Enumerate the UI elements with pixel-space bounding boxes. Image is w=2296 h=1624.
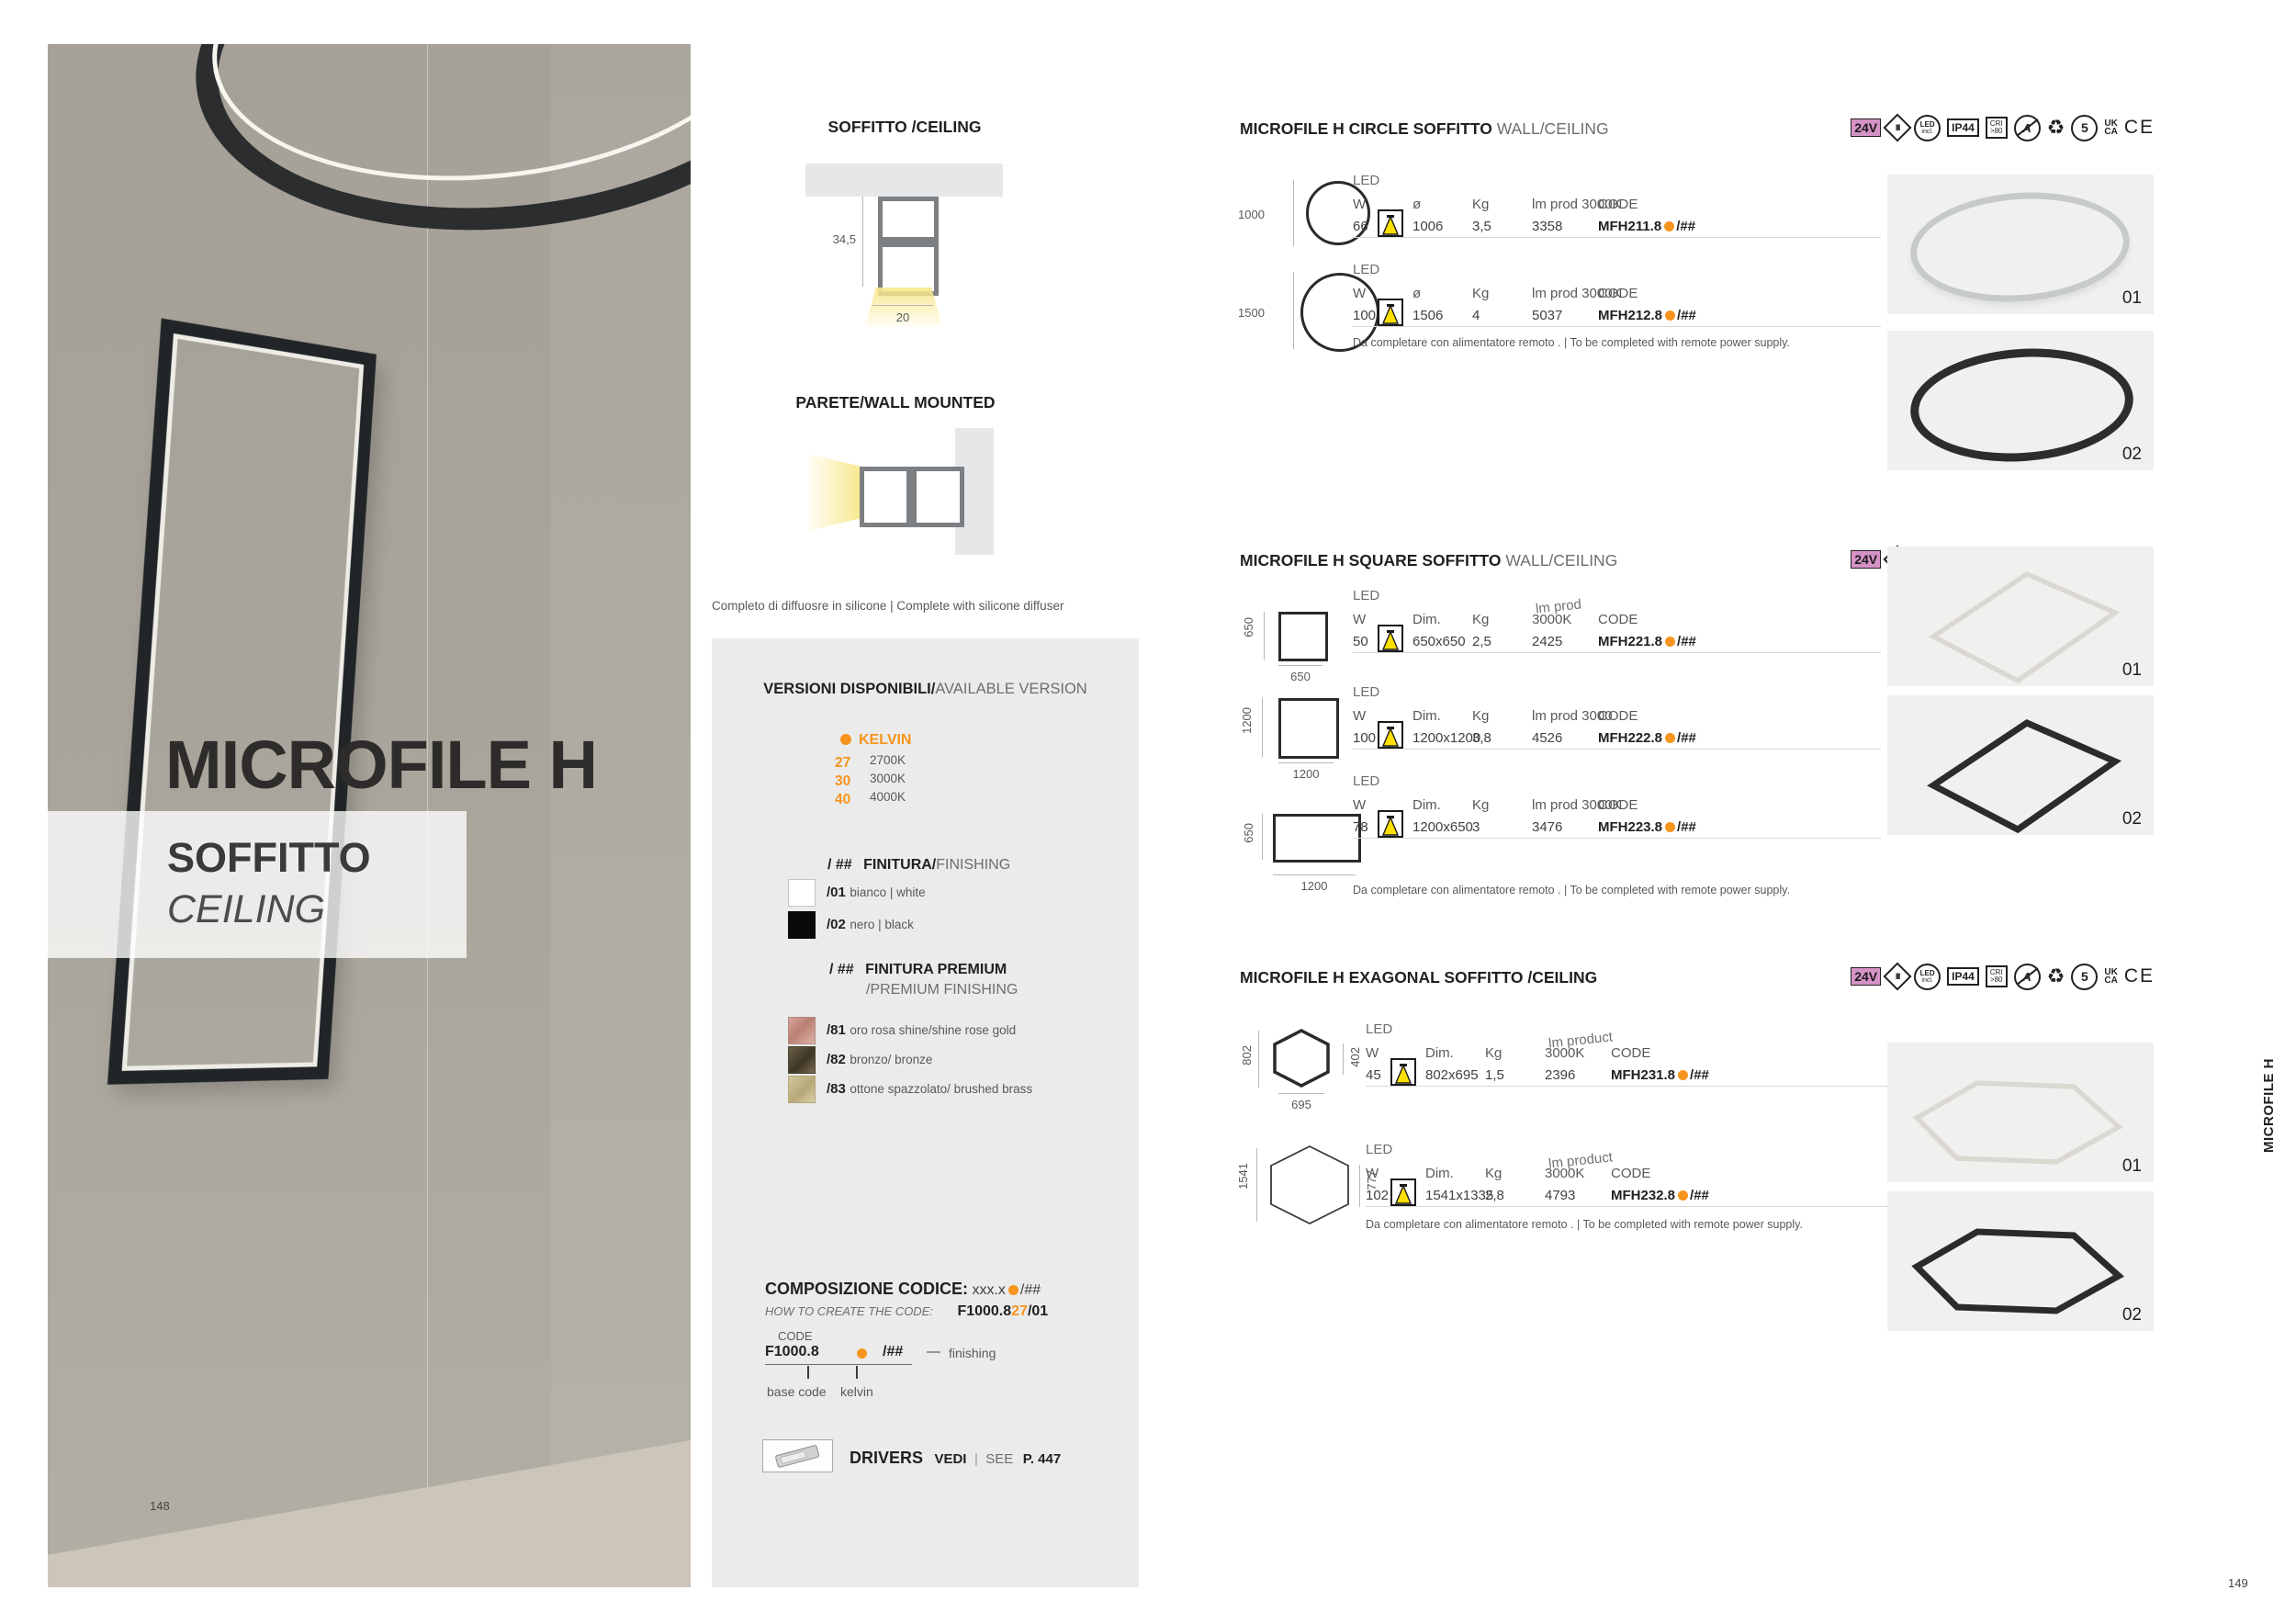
drivers-label: DRIVERS: [850, 1449, 923, 1467]
badge-ce-icon: CE: [2124, 117, 2155, 139]
dim-line: [1343, 1043, 1344, 1075]
code-value: MFH221.8: [1598, 634, 1662, 649]
swatch-bronze: [788, 1046, 816, 1074]
col-header-dim: Dim.: [1412, 612, 1441, 627]
light-beam-icon: [1378, 625, 1403, 652]
kelvin-dot-icon: [857, 1348, 867, 1359]
code-composition-title: COMPOSIZIONE CODICE: xxx.x/##: [765, 1280, 1041, 1299]
power-supply-note: Da completare con alimentatore remoto . …: [1366, 1218, 1803, 1231]
circle-diameter-label: 1000: [1238, 208, 1265, 221]
kelvin-dot-icon: [1008, 1285, 1019, 1295]
hex-bottom-label: 695: [1278, 1098, 1324, 1111]
kelvin-dot-icon: [1678, 1070, 1688, 1080]
recycle-icon: ♻: [2047, 966, 2065, 987]
spec-row: LED W Dim. Kg lm prod 3000K CODE 50 650x…: [1353, 588, 1881, 653]
badge-24v-icon: 24V: [1851, 967, 1881, 986]
col-header-lm: 3000K: [1532, 612, 1571, 627]
spec-row: LED W Dim. Kg lm prod 3000K CODE 78 1200…: [1353, 773, 1881, 839]
value-dim: 1200x1200: [1412, 730, 1480, 746]
variant-label: 01: [2122, 660, 2142, 681]
light-beam-icon: [1378, 721, 1403, 749]
dim-line: [1264, 612, 1265, 660]
white-ring-product: [1907, 186, 2133, 309]
wall-diagram-title: PARETE/WALL MOUNTED: [781, 393, 1010, 412]
sample-kelvin: 27: [1011, 1303, 1028, 1319]
side-tab-label: MICROFILE H: [2261, 1058, 2277, 1153]
rect-drawing: [1273, 814, 1361, 863]
light-beam-icon: [1378, 299, 1403, 326]
badge-cri-icon: CRI>80: [1986, 965, 2008, 987]
square-bottom-label: 1200: [1278, 767, 1334, 781]
code-formula: F1000.8 /##: [765, 1344, 912, 1365]
value-lm: 3476: [1532, 819, 1562, 835]
value-lm: 2396: [1545, 1067, 1575, 1083]
code-value: MFH223.8: [1598, 819, 1662, 835]
col-header-dim: ø: [1412, 286, 1421, 301]
swatch-brushed-brass: [788, 1076, 816, 1103]
kelvin-dot-icon: [1678, 1190, 1688, 1201]
code-value: MFH231.8: [1611, 1067, 1675, 1083]
kelvin-title: KELVIN: [859, 732, 911, 749]
col-header-dim: ø: [1412, 197, 1421, 212]
finishing-suffix: /##: [883, 1344, 903, 1360]
badge-class3-icon: III: [1884, 962, 1912, 990]
value-lm: 4793: [1545, 1188, 1575, 1203]
dim-line: [862, 197, 863, 287]
code-value: MFH232.8: [1611, 1188, 1675, 1203]
badge-class3-label: III: [1896, 972, 1900, 981]
code-suffix: /##: [1677, 819, 1696, 835]
driver-illustration: [763, 1440, 832, 1472]
badge-ukca-icon: UKCA: [2104, 968, 2117, 985]
finish-row-bronze: /82 bronzo/ bronze: [827, 1052, 932, 1068]
code-comp-bold: COMPOSIZIONE CODICE:: [765, 1280, 968, 1298]
profile-section-drawing-wall: [860, 467, 964, 527]
value-kg: 2,8: [1485, 1188, 1504, 1203]
square-side-label: 1200: [1240, 707, 1254, 734]
dim-line: [1293, 180, 1294, 246]
square-drawing: [1278, 612, 1328, 661]
badge-ip44-icon: IP44: [1947, 118, 1979, 137]
variant-label: 01: [2122, 288, 2142, 309]
ceiling-diagram-title: SOFFITTO /CEILING: [790, 118, 1019, 137]
finish-code: /83: [827, 1081, 846, 1097]
dim-line: [1359, 1165, 1360, 1207]
col-header-code: CODE: [1598, 286, 1638, 301]
badge-5year-icon: 5: [2071, 964, 2098, 990]
col-header-code: CODE: [1611, 1045, 1650, 1061]
badge-ukca-icon: UKCA: [2104, 119, 2117, 136]
col-header-lm: 3000K: [1545, 1045, 1584, 1061]
page-number-right: 149: [2228, 1576, 2248, 1590]
spec-row: LED W ø Kg lm prod 3000K CODE 100 1506 4…: [1353, 262, 1881, 327]
product-code: MFH231.8/##: [1611, 1067, 1709, 1083]
kelvin-dot-icon: [1665, 733, 1675, 743]
profile-section-drawing: [878, 197, 939, 296]
dim-line: [1262, 698, 1263, 757]
badge-cri-icon: CRI>80: [1986, 117, 2008, 139]
rect-side-label: 650: [1242, 823, 1255, 843]
section-title-square: MICROFILE H SQUARE SOFFITTO WALL/CEILING: [1240, 551, 1617, 570]
black-hexagon-product: [1887, 1191, 2154, 1331]
value-w: 100: [1353, 730, 1376, 746]
badge-cri-value: >80: [1990, 128, 2003, 135]
swatch-white: [788, 879, 816, 907]
variant-label: 01: [2122, 1156, 2142, 1177]
code-suffix: /##: [1677, 308, 1696, 323]
finish-code: /02: [827, 917, 846, 932]
dash: —: [927, 1344, 940, 1359]
col-header-code: CODE: [1598, 797, 1638, 813]
hex-left-label: 1541: [1236, 1163, 1250, 1190]
frame-light-photo: [107, 318, 377, 1084]
col-header-dim: Dim.: [1412, 797, 1441, 813]
col-header-w: W: [1353, 197, 1366, 212]
code-comp-suffix: /##: [1020, 1282, 1041, 1298]
code-suffix: /##: [1677, 634, 1696, 649]
col-header-kg: Kg: [1472, 612, 1489, 627]
col-header-kg: Kg: [1472, 708, 1489, 724]
col-header-w: W: [1353, 286, 1366, 301]
badge-ip44-label: IP44: [1952, 122, 1975, 133]
spec-row: LED W Dim. Kg lm prod 3000 CODE 100 1200…: [1353, 684, 1881, 750]
light-beam-icon: [1378, 810, 1403, 838]
recycle-icon: ♻: [2047, 118, 2065, 138]
finishing-prefix: / ##: [827, 857, 852, 873]
finishing-bold: FINITURA/: [863, 857, 936, 873]
finish-code: /82: [827, 1052, 846, 1067]
black-ring-product: [1907, 342, 2137, 469]
kelvin-dot-icon: [1664, 221, 1674, 231]
sample-pre: F1000.8: [957, 1303, 1011, 1319]
col-header-w: W: [1366, 1045, 1379, 1061]
value-kg: 4: [1472, 308, 1480, 323]
col-header-dim: Dim.: [1425, 1045, 1454, 1061]
page-title: MICROFILE H: [165, 726, 597, 804]
badge-5year-icon: 5: [2071, 115, 2098, 141]
subtitle-english: CEILING: [167, 887, 325, 932]
circle-diameter-label: 1500: [1238, 306, 1265, 320]
rect-bottom-label: 1200: [1273, 879, 1356, 893]
product-code: MFH212.8/##: [1598, 308, 1696, 323]
spec-row: LED W ø Kg lm prod 3000K CODE 66 1006 3,…: [1353, 173, 1881, 238]
black-square-product: [1887, 695, 2154, 835]
col-header-code: CODE: [1598, 612, 1638, 627]
code-label: CODE: [778, 1329, 813, 1343]
product-image-hexagon-white: 01: [1887, 1043, 2154, 1182]
product-code: MFH232.8/##: [1611, 1188, 1709, 1203]
code-comp-example: xxx.x: [972, 1282, 1005, 1298]
finishing-rest: FINISHING: [936, 857, 1010, 873]
badge-24v-icon: 24V: [1851, 118, 1881, 137]
value-w: 102: [1366, 1188, 1389, 1203]
code-value: MFH222.8: [1598, 730, 1662, 746]
col-header-kg: Kg: [1472, 197, 1489, 212]
hero-photo: MICROFILE H SOFFITTO CEILING 148: [48, 44, 691, 1587]
catalog-page: MICROFILE H SOFFITTO CEILING 148 SOFFITT…: [0, 0, 2296, 1624]
badge-ca-label: CA: [2104, 128, 2117, 136]
drivers-page-ref: P. 447: [1023, 1451, 1061, 1467]
value-dim: 802x695: [1425, 1067, 1479, 1083]
value-dim: 650x650: [1412, 634, 1466, 649]
light-beam-left: [808, 454, 860, 531]
kelvin-dot-icon: [1665, 310, 1675, 321]
badge-led-label: LED: [1920, 970, 1935, 977]
light-beam-icon: [1390, 1179, 1416, 1206]
col-header-code: CODE: [1598, 708, 1638, 724]
ceiling-slab: [805, 164, 1003, 197]
kelvin-value: 2700K: [870, 753, 906, 767]
kelvin-value: 4000K: [870, 790, 906, 804]
section-title-bold: MICROFILE H SQUARE SOFFITTO: [1240, 551, 1502, 570]
badge-ce-icon: CE: [2124, 965, 2155, 987]
premium-header-line2: /PREMIUM FINISHING: [866, 982, 1018, 998]
sample-fin: /01: [1028, 1303, 1048, 1319]
swatch-black: [788, 911, 816, 939]
value-kg: 3: [1472, 819, 1480, 835]
value-dim: 1506: [1412, 308, 1443, 323]
value-kg: 1,5: [1485, 1067, 1504, 1083]
premium-header: / ## FINITURA PREMIUM: [829, 962, 1007, 978]
white-hexagon-product: [1887, 1043, 2154, 1182]
hexagon-drawing: [1271, 1029, 1332, 1088]
col-header-w: W: [1353, 708, 1366, 724]
section-title-sub: WALL/CEILING: [1497, 119, 1609, 138]
finish-code: /01: [827, 885, 846, 900]
page-number-left: 148: [150, 1499, 170, 1513]
badge-class3-icon: III: [1884, 113, 1912, 141]
finishing-word: finishing: [949, 1346, 996, 1360]
col-header-dim: Dim.: [1425, 1166, 1454, 1181]
hex-right-label: 402: [1348, 1047, 1362, 1067]
drivers-row: DRIVERS VEDI | SEE P. 447: [850, 1449, 1061, 1468]
product-image-circle-white: 01: [1887, 175, 2154, 314]
kelvin-dot-icon: [1665, 822, 1675, 832]
badge-cri-value: >80: [1990, 976, 2003, 984]
product-code: MFH221.8/##: [1598, 634, 1696, 649]
col-header-code: CODE: [1598, 197, 1638, 212]
value-kg: 3,8: [1472, 730, 1491, 746]
finish-label: ottone spazzolato/ brushed brass: [850, 1082, 1032, 1096]
col-header-dim: Dim.: [1412, 708, 1441, 724]
finish-label: nero | black: [850, 918, 914, 931]
code-value: MFH211.8: [1598, 219, 1661, 234]
led-label: LED: [1353, 262, 1379, 277]
dim-line: [1278, 762, 1334, 763]
col-header-w: W: [1353, 612, 1366, 627]
dim-20: 20: [872, 310, 933, 324]
badge-led-included-icon: LEDincl.: [1914, 964, 1941, 990]
code-suffix: /##: [1690, 1067, 1709, 1083]
hex-left-label: 802: [1240, 1045, 1254, 1066]
product-image-circle-black: 02: [1887, 331, 2154, 470]
subtitle-italian: SOFFITTO: [167, 834, 371, 882]
premium-bold: FINITURA PREMIUM: [865, 962, 1007, 977]
how-to-label: HOW TO CREATE THE CODE:: [765, 1304, 933, 1318]
base-code-value: F1000.8: [765, 1344, 819, 1360]
value-lm: 3358: [1532, 219, 1562, 234]
square-drawing: [1278, 698, 1339, 759]
power-supply-note: Da completare con alimentatore remoto . …: [1353, 336, 1790, 349]
pointer-bar: [807, 1366, 809, 1379]
value-w: 100: [1353, 308, 1376, 323]
code-value: MFH212.8: [1598, 308, 1662, 323]
led-label: LED: [1366, 1021, 1392, 1037]
how-to-row: HOW TO CREATE THE CODE: F1000.827/01: [765, 1303, 1048, 1320]
finish-label: oro rosa shine/shine rose gold: [850, 1023, 1016, 1037]
square-bottom-label: 650: [1278, 670, 1322, 683]
versions-title-bold: VERSIONI DISPONIBILI/: [763, 681, 935, 697]
wall-panel: [551, 44, 691, 1587]
badge-led-label: LED: [1920, 121, 1935, 129]
finish-code: /81: [827, 1022, 846, 1038]
badge-24v-icon: 24V: [1851, 550, 1881, 569]
premium-prefix: / ##: [829, 962, 854, 977]
pointer-bar: [856, 1366, 858, 1379]
col-header-kg: Kg: [1485, 1166, 1502, 1181]
variant-label: 02: [2122, 445, 2142, 465]
col-header-w: W: [1366, 1166, 1379, 1181]
product-code: MFH223.8/##: [1598, 819, 1696, 835]
variant-label: 02: [2122, 809, 2142, 829]
dim-line: [1258, 1031, 1259, 1088]
dim-line: [1278, 665, 1322, 666]
finish-row-white: /01 bianco | white: [827, 885, 926, 901]
value-lm: 2425: [1532, 634, 1562, 649]
certification-badges: 24V III LEDincl. IP44 CRI>80 A ♻ 5 UKCA …: [1837, 112, 2155, 143]
value-w: 66: [1353, 219, 1368, 234]
product-code: MFH222.8/##: [1598, 730, 1696, 746]
kelvin-dot-icon: [1665, 637, 1675, 647]
product-image-hexagon-black: 02: [1887, 1191, 2154, 1331]
badge-ip44-label: IP44: [1952, 971, 1975, 982]
badge-a-label: A: [2022, 970, 2031, 984]
finish-label: bronzo/ bronze: [850, 1053, 932, 1066]
badge-no-lamp-icon: A: [2014, 115, 2041, 141]
sample-code: F1000.827/01: [957, 1303, 1048, 1319]
value-w: 45: [1366, 1067, 1381, 1083]
code-suffix: /##: [1690, 1188, 1709, 1203]
value-dim: 1200x650: [1412, 819, 1473, 835]
spec-row: LED W Dim. Kg lm product 3000K CODE 45 8…: [1366, 1021, 1894, 1087]
value-kg: 3,5: [1472, 219, 1491, 234]
title-band: [48, 811, 467, 958]
driver-icon: [762, 1439, 833, 1472]
kelvin-code: 30: [835, 773, 850, 790]
versions-title: VERSIONI DISPONIBILI/AVAILABLE VERSION: [712, 681, 1139, 698]
led-label: LED: [1353, 588, 1379, 603]
value-dim: 1006: [1412, 219, 1443, 234]
swatch-rose-gold: [788, 1017, 816, 1044]
section-title-sub: WALL/CEILING: [1505, 551, 1617, 570]
value-lm: 5037: [1532, 308, 1562, 323]
value-kg: 2,5: [1472, 634, 1491, 649]
led-label: LED: [1353, 684, 1379, 700]
hexagon-drawing: [1267, 1145, 1352, 1225]
led-label: LED: [1366, 1142, 1392, 1157]
kelvin-code: 27: [835, 755, 850, 772]
drivers-vedi: VEDI: [934, 1451, 966, 1467]
dim-line: [1273, 874, 1356, 875]
separator: |: [974, 1451, 978, 1467]
dim-line: [872, 305, 933, 306]
badge-led-label2: incl.: [1921, 129, 1932, 135]
value-dim: 1541x1335: [1425, 1188, 1493, 1203]
dim-line: [1278, 1093, 1324, 1094]
col-header-kg: Kg: [1472, 797, 1489, 813]
col-header-kg: Kg: [1472, 286, 1489, 301]
badge-a-label: A: [2022, 121, 2031, 135]
kelvin-value: 3000K: [870, 772, 906, 785]
col-header-kg: Kg: [1485, 1045, 1502, 1061]
kelvin-dot-icon: [840, 734, 851, 745]
led-label: LED: [1353, 773, 1379, 789]
section-title-circle: MICROFILE H CIRCLE SOFFITTO WALL/CEILING: [1240, 119, 1609, 139]
light-beam-icon: [1390, 1058, 1416, 1086]
square-side-label: 650: [1242, 617, 1255, 637]
finish-row-black: /02 nero | black: [827, 917, 914, 933]
col-header-w: W: [1353, 797, 1366, 813]
section-title-bold: MICROFILE H EXAGONAL SOFFITTO /CEILING: [1240, 968, 1597, 987]
led-label: LED: [1353, 173, 1379, 188]
certification-badges: 24V III LEDincl. IP44 CRI>80 A ♻ 5 UKCA …: [1837, 961, 2155, 992]
light-beam-icon: [1378, 209, 1403, 237]
kelvin-code: 40: [835, 792, 850, 808]
section-title-bold: MICROFILE H CIRCLE SOFFITTO: [1240, 119, 1492, 138]
product-image-square-black: 02: [1887, 695, 2154, 835]
badge-no-lamp-icon: A: [2014, 964, 2041, 990]
drivers-see: SEE: [985, 1451, 1013, 1467]
code-suffix: /##: [1677, 730, 1696, 746]
spec-row: LED W Dim. Kg lm product 3000K CODE 102 …: [1366, 1142, 1894, 1207]
col-header-lm: 3000K: [1545, 1166, 1584, 1181]
code-suffix: /##: [1676, 219, 1695, 234]
value-lm: 4526: [1532, 730, 1562, 746]
value-w: 50: [1353, 634, 1368, 649]
product-code: MFH211.8/##: [1598, 219, 1695, 234]
section-title-exagonal: MICROFILE H EXAGONAL SOFFITTO /CEILING: [1240, 968, 1597, 987]
versions-panel: VERSIONI DISPONIBILI/AVAILABLE VERSION K…: [712, 638, 1139, 1587]
variant-label: 02: [2122, 1305, 2142, 1325]
badge-ca-label: CA: [2104, 976, 2117, 985]
kelvin-pointer-label: kelvin: [840, 1384, 873, 1399]
power-supply-note: Da completare con alimentatore remoto . …: [1353, 884, 1790, 897]
versions-title-rest: AVAILABLE VERSION: [935, 681, 1086, 697]
badge-ip44-icon: IP44: [1947, 967, 1979, 986]
dim-line: [1293, 272, 1294, 349]
badge-led-label2: incl.: [1921, 977, 1932, 984]
dim-line: [1256, 1148, 1257, 1222]
white-square-product: [1887, 547, 2154, 686]
finish-row-brass: /83 ottone spazzolato/ brushed brass: [827, 1081, 1032, 1098]
floor: [48, 1440, 691, 1587]
finish-label: bianco | white: [850, 885, 925, 899]
diffuser-caption: Completo di diffuosre in silicone | Comp…: [712, 599, 1079, 613]
badge-class3-label: III: [1896, 123, 1900, 132]
col-header-code: CODE: [1611, 1166, 1650, 1181]
value-w: 78: [1353, 819, 1368, 835]
finish-row-rose-gold: /81 oro rosa shine/shine rose gold: [827, 1022, 1016, 1039]
base-code-label: base code: [767, 1384, 827, 1399]
dim-line: [1262, 814, 1263, 860]
product-image-square-white: 01: [1887, 547, 2154, 686]
dim-34-5: 34,5: [816, 232, 856, 246]
finishing-header: / ## FINITURA/FINISHING: [827, 857, 1010, 874]
badge-led-included-icon: LEDincl.: [1914, 115, 1941, 141]
